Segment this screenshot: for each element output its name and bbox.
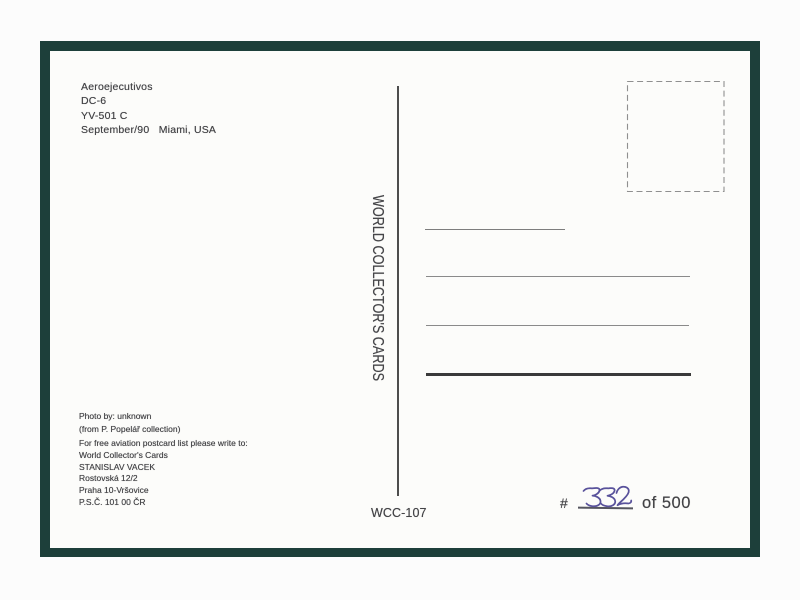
svg-text:WORLD COLLECTOR'S CARDS: WORLD COLLECTOR'S CARDS: [369, 195, 386, 381]
